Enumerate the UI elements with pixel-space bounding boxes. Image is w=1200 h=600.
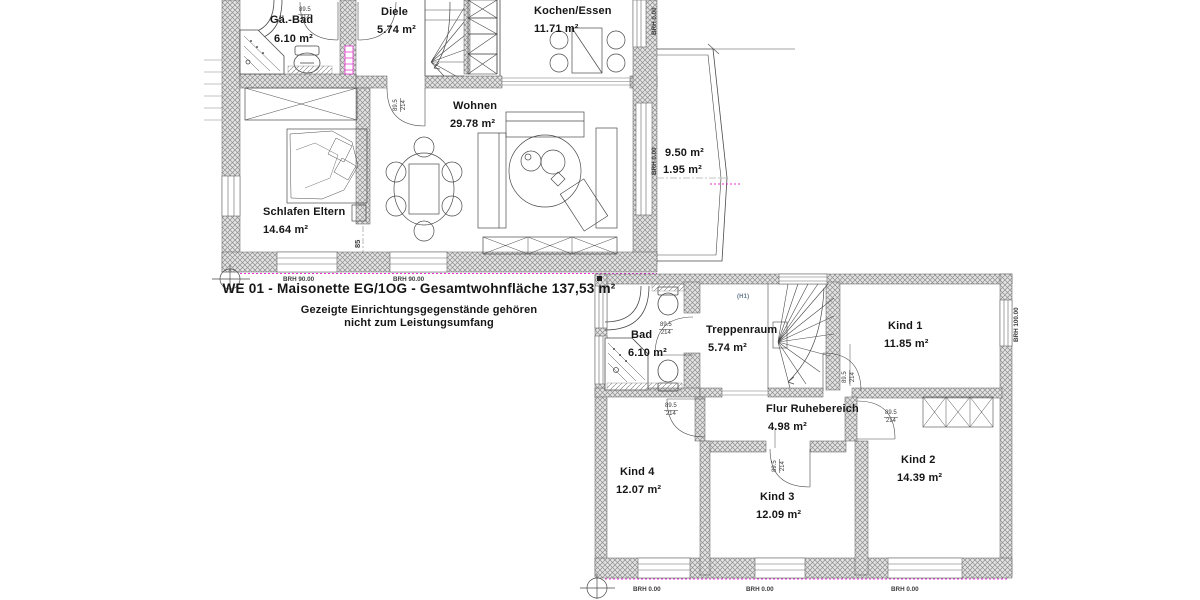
room-label: Bad xyxy=(631,329,652,341)
room-label: Kochen/Essen xyxy=(534,5,612,17)
room-area: 12.09 m² xyxy=(756,509,801,521)
door-dimension: 89.5214 xyxy=(659,322,673,336)
og-wardrobe xyxy=(923,397,993,427)
og-staircase xyxy=(768,284,834,389)
door-dimension: 89.5214 xyxy=(393,98,407,112)
chair xyxy=(414,221,434,241)
eg-lintel-opening xyxy=(502,78,632,85)
eg-left-ticks xyxy=(204,60,222,120)
plan-note: nicht zum Leistungsumfang xyxy=(222,317,616,329)
room-area: 5.74 m² xyxy=(377,24,416,36)
floorplan-canvas: Gä.-Bad 6.10 m² Diele 5.74 m² Kochen/Ess… xyxy=(0,0,1200,600)
room-area: 6.10 m² xyxy=(628,347,667,359)
room-area: 6.10 m² xyxy=(274,33,313,45)
plan-title: WE 01 - Maisonette EG/1OG - Gesamtwohnfl… xyxy=(222,283,616,295)
door-dimension: 89.5214 xyxy=(298,7,312,21)
pillow xyxy=(328,138,352,162)
room-area: 11.71 m² xyxy=(534,23,579,35)
room-label: Treppenraum xyxy=(706,324,777,336)
room-label: Kind 1 xyxy=(888,320,923,332)
balcony-area: 9.50 m² xyxy=(665,147,704,159)
room-label: Diele xyxy=(381,6,408,18)
eg-bedroom-furniture xyxy=(245,88,367,221)
eg-staircase xyxy=(425,2,464,76)
linework-layer xyxy=(0,0,1200,600)
pillow xyxy=(334,158,356,180)
og-plan xyxy=(580,274,1012,599)
radiator-icon xyxy=(345,46,353,74)
room-area: 14.64 m² xyxy=(263,224,308,236)
opening-width-label: 85 xyxy=(352,240,364,248)
room-label: Schlafen Eltern xyxy=(263,206,345,218)
chair xyxy=(607,54,625,72)
sofa xyxy=(506,112,584,137)
tv xyxy=(560,179,607,231)
room-area: 5.74 m² xyxy=(708,342,747,354)
chair xyxy=(442,162,462,182)
room-area: 12.07 m² xyxy=(616,484,661,496)
tile-strip xyxy=(607,383,682,390)
sill-height-label: BRH 100.00 xyxy=(1011,307,1023,342)
balcony-area: 1.95 m² xyxy=(663,164,702,176)
room-area: 29.78 m² xyxy=(450,118,495,130)
corner-shower-icon xyxy=(605,338,648,390)
door-dimension: 89.5214 xyxy=(664,403,678,417)
bed xyxy=(287,129,367,203)
room-label: Kind 2 xyxy=(901,454,936,466)
room-area: 4.98 m² xyxy=(768,421,807,433)
room-area: 11.85 m² xyxy=(884,338,929,350)
chair xyxy=(414,137,434,157)
sill-height-label: BRH 0.00 xyxy=(649,147,661,175)
sill-height-label: BRH 0.00 xyxy=(633,584,661,596)
sill-height-label: BRH 0.00 xyxy=(891,584,919,596)
chair xyxy=(550,54,568,72)
door-dimension: 89.5214 xyxy=(842,370,856,384)
sill-height-label: BRH 0.00 xyxy=(649,7,661,35)
chair xyxy=(442,196,462,216)
blanket xyxy=(290,131,358,199)
sofa xyxy=(478,133,506,228)
room-label: Wohnen xyxy=(453,100,497,112)
sill-height-label: BRH 0.00 xyxy=(746,584,774,596)
room-label: Flur Ruhebereich xyxy=(766,403,859,415)
chair xyxy=(386,162,406,182)
tv-board xyxy=(596,128,617,228)
room-label: Kind 4 xyxy=(620,466,655,478)
plan-note: Gezeigte Einrichtungsgegenstände gehören xyxy=(222,304,616,316)
door-dimension: 89.5214 xyxy=(772,459,786,473)
eg-living-furniture xyxy=(386,112,617,254)
room-area: 14.39 m² xyxy=(897,472,942,484)
room-label: Kind 3 xyxy=(760,491,795,503)
chair xyxy=(386,196,406,216)
og-threshold xyxy=(722,391,768,395)
chair xyxy=(607,31,625,49)
tile-strip xyxy=(652,284,684,291)
stair-reference-label: (H1) xyxy=(737,291,749,303)
eg-kitchen-cabinets xyxy=(468,0,497,74)
toilet-icon xyxy=(658,287,678,315)
tile-strip xyxy=(288,66,332,74)
door-dimension: 89.5214 xyxy=(884,410,898,424)
